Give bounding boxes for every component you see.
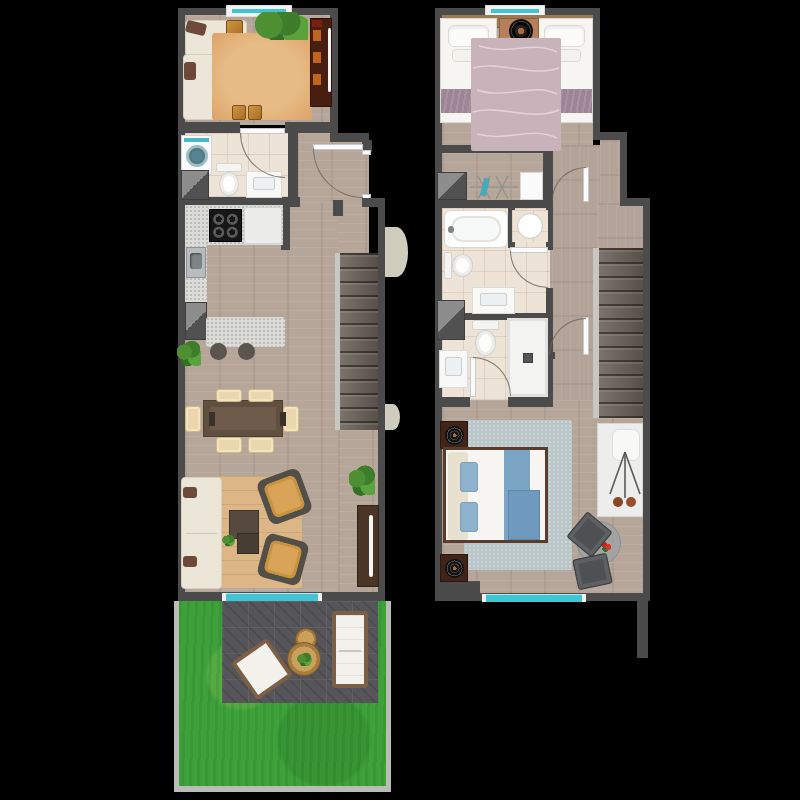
wall xyxy=(435,581,480,596)
cushion-seam xyxy=(339,650,361,652)
console-shelf xyxy=(313,74,321,85)
wall xyxy=(285,122,338,133)
wall xyxy=(378,203,385,601)
exterior-symbol xyxy=(385,227,408,277)
toilet xyxy=(444,252,474,279)
stair-landing-floor xyxy=(598,203,643,253)
console-decor xyxy=(312,20,322,27)
service-shaft xyxy=(437,172,467,200)
table-plant xyxy=(222,534,235,547)
bar-stool xyxy=(238,343,255,360)
sofa-seam xyxy=(186,533,217,534)
wall xyxy=(288,133,298,202)
vanity-sink xyxy=(472,287,515,314)
vanity-sink xyxy=(439,350,468,388)
dining-chair xyxy=(216,389,242,402)
decor-plate-icon xyxy=(445,559,464,578)
wall xyxy=(508,397,553,407)
exterior-symbol xyxy=(385,404,400,430)
potted-plant xyxy=(177,339,201,368)
wall xyxy=(643,203,650,601)
tv-icon xyxy=(328,28,331,92)
kitchen-sink xyxy=(186,247,206,278)
washer-panel xyxy=(184,138,209,142)
cube-side-table xyxy=(232,105,246,120)
washing-machine xyxy=(181,135,212,175)
service-shaft xyxy=(437,300,465,340)
wall xyxy=(620,140,627,206)
tv-icon xyxy=(369,515,373,577)
dining-chair xyxy=(248,389,274,402)
twin-bedroom-rug xyxy=(471,38,561,151)
door-frame xyxy=(362,150,371,155)
terrace-sliding-window xyxy=(222,593,322,601)
dining-chair xyxy=(185,406,201,432)
dining-chair xyxy=(216,437,242,453)
nightstand xyxy=(440,421,468,449)
wall xyxy=(333,200,343,216)
window xyxy=(482,594,586,602)
sink-basin xyxy=(445,357,462,376)
toilet xyxy=(216,163,242,197)
toilet xyxy=(472,320,499,357)
blue-pillow xyxy=(460,462,478,492)
cube-side-table xyxy=(248,105,262,120)
tv-sideboard xyxy=(357,505,379,587)
clothes-rail xyxy=(470,172,518,202)
toilet-bowl xyxy=(452,254,473,277)
armchair-seat xyxy=(263,539,302,579)
dining-table xyxy=(203,400,283,437)
coffee-table xyxy=(237,533,259,554)
sink-basin xyxy=(480,293,506,306)
refrigerator xyxy=(244,207,282,244)
tub-basin xyxy=(451,216,501,242)
window-glass xyxy=(491,9,540,13)
bar-stool xyxy=(210,343,227,360)
washer-door-icon xyxy=(186,145,208,167)
console-shelf xyxy=(313,30,321,41)
chair-armrest xyxy=(280,412,286,426)
lamp-tripod-icon xyxy=(606,450,644,512)
tub-faucet-icon xyxy=(448,226,454,233)
sofa-pillow xyxy=(183,556,197,567)
toilet-tank xyxy=(444,252,452,279)
walk-in-shower xyxy=(507,318,548,397)
staircase-down xyxy=(340,253,378,430)
sink-bowl xyxy=(190,253,202,269)
cooktop xyxy=(209,209,242,242)
exterior-wall-stub xyxy=(637,601,648,658)
wall xyxy=(185,122,240,133)
round-basin xyxy=(517,213,543,239)
sofa-pillow xyxy=(184,62,196,80)
outdoor-sofa xyxy=(332,611,368,688)
wall xyxy=(593,132,627,140)
table-plant xyxy=(297,652,312,667)
wall xyxy=(593,8,600,140)
toilet-bowl xyxy=(475,330,496,356)
shower-drain-icon xyxy=(523,353,533,363)
wall xyxy=(435,397,470,407)
chair-armrest xyxy=(209,412,215,426)
stair-banister xyxy=(335,253,340,430)
toilet-tank xyxy=(216,163,242,172)
wardrobe-panel xyxy=(520,172,543,200)
double-bed xyxy=(443,447,548,543)
studio-rug xyxy=(212,33,312,120)
toilet-bowl xyxy=(219,172,239,196)
blue-pillow xyxy=(460,502,478,532)
armchair-seat xyxy=(263,474,306,518)
sofa-pillow xyxy=(183,487,197,498)
folded-blanket xyxy=(508,490,540,540)
bathtub xyxy=(444,210,508,248)
floorplan-canvas xyxy=(0,0,800,800)
stair-banister xyxy=(593,248,599,418)
sink-basin xyxy=(253,177,275,190)
basin-alcove xyxy=(512,210,548,242)
hangers-icon xyxy=(470,172,518,202)
landing-floor xyxy=(600,140,620,203)
service-shaft xyxy=(185,302,207,340)
potted-plant xyxy=(349,463,375,498)
service-shaft xyxy=(181,170,209,200)
decor-plate-icon xyxy=(445,426,464,445)
toilet-tank xyxy=(472,320,499,330)
console-shelf xyxy=(313,52,321,63)
rug-wave-pattern xyxy=(471,38,561,151)
nightstand xyxy=(440,554,468,582)
staircase-up xyxy=(598,248,643,418)
dining-chair xyxy=(248,437,274,453)
plant-row xyxy=(252,12,308,40)
